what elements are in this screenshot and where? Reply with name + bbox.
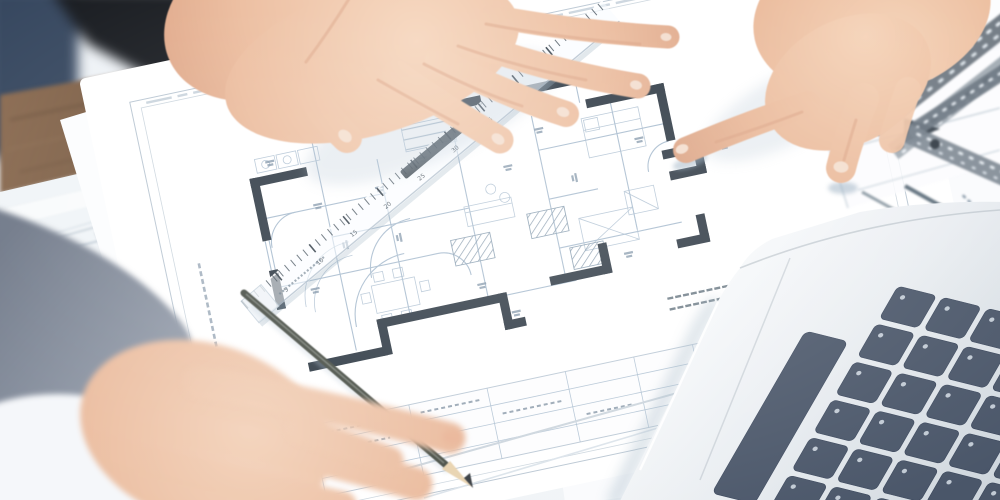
scene-canvas: 5 10 15 20 25 30 35 40 45 50 [0, 0, 1000, 500]
photo-architects-blueprint: 5 10 15 20 25 30 35 40 45 50 [0, 0, 1000, 500]
light-glow-overlay [0, 0, 1000, 500]
